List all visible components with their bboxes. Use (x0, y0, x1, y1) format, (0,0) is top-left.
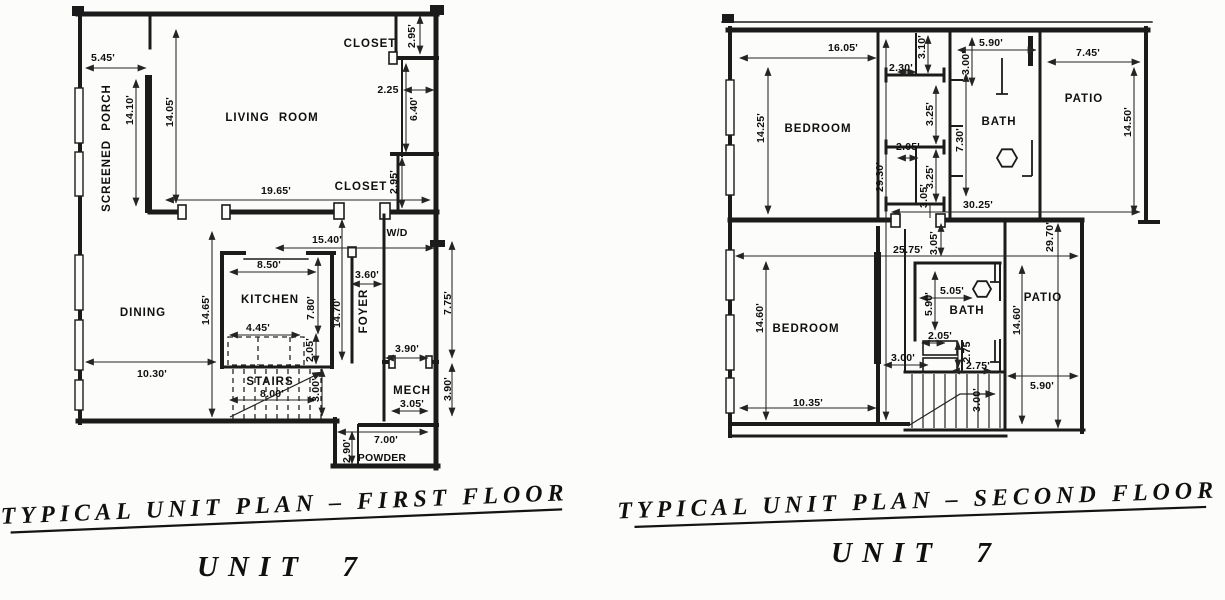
dim-hall-w: 15.40' (312, 234, 342, 246)
dim-c230: 2.30' (889, 62, 913, 74)
dim-right-h: 29.70' (1044, 222, 1056, 252)
first-floor-title: TYPICAL UNIT PLAN – FIRST FLOOR (0, 480, 569, 530)
second-floor-plan: BEDROOM BATH PATIO BEDROOM BATH PATIO 16… (722, 14, 1158, 436)
dim-porch-h: 14.10' (124, 95, 136, 125)
first-floor-unit-label: UNIT 7 (197, 551, 367, 583)
dim-counter-d: 2.05' (304, 338, 316, 362)
dim-bed2-h: 14.60' (754, 303, 766, 333)
label-screened-porch: SCREENED PORCH (101, 84, 113, 212)
label-kitchen: KITCHEN (241, 294, 299, 306)
scanned-floor-plan-page: SCREENED PORCH LIVING ROOM CLOSET CLOSET… (0, 0, 1225, 600)
label-powder: POWDER (358, 452, 407, 464)
second-floor-caption: TYPICAL UNIT PLAN – SECOND FLOOR (617, 478, 1219, 528)
dim-c325-u: 3.25' (924, 102, 936, 126)
dim-nook-h: 6.40' (408, 97, 420, 121)
label-bedroom-top: BEDROOM (784, 123, 851, 135)
dim-right-upper: 7.75' (442, 291, 454, 315)
dim-mid-w: 25.75' (893, 244, 923, 256)
dim-bed1-w: 16.05' (828, 42, 858, 54)
dim-dining-w: 10.30' (137, 368, 167, 380)
dim-c205-u: 2.05' (896, 141, 920, 153)
dim-porch-w: 5.45' (91, 52, 115, 64)
dim-closet-top-d: 2.95' (406, 24, 418, 48)
dim-c205-l: 2.05' (928, 330, 952, 342)
dim-right-lower: 3.90' (442, 377, 454, 401)
dim-stair-w: 8.00' (260, 388, 284, 400)
dim-foyer-h: 14.70' (331, 298, 343, 328)
dim-patio2-h: 14.60' (1011, 305, 1023, 335)
dim-bath1-h: 7.30' (954, 128, 966, 152)
first-floor-plan: SCREENED PORCH LIVING ROOM CLOSET CLOSET… (72, 5, 454, 468)
dim-bath1-d: 3.00' (960, 51, 972, 75)
floor-plans-drawing: SCREENED PORCH LIVING ROOM CLOSET CLOSET… (0, 0, 1225, 600)
dim-closet-bot-d: 2.95' (388, 170, 400, 194)
dim-nook-w: 2.25 (377, 84, 398, 96)
dim-living-h: 14.05' (164, 97, 176, 127)
dim-upper-w: 30.25' (963, 199, 993, 211)
dim-powder-d: 2.90' (341, 439, 353, 463)
label-living-room: LIVING ROOM (225, 112, 318, 124)
dim-dining-h: 14.65' (200, 295, 212, 325)
label-patio-bottom: PATIO (1024, 292, 1062, 304)
second-floor-walls (722, 14, 1158, 436)
label-closet-top: CLOSET (344, 38, 397, 50)
dim-c305-m: 3.05' (928, 231, 940, 255)
dim-mech-w: 3.05' (400, 398, 424, 410)
dim-foyer-w: 3.60' (355, 269, 379, 281)
dim-powder-w: 7.00' (374, 434, 398, 446)
label-bath-bottom: BATH (949, 305, 984, 317)
dim-hall-w: 3.00' (891, 352, 915, 364)
label-stairs: STAIRS (246, 376, 293, 388)
label-wd: W/D (386, 227, 407, 239)
dim-counter-w: 4.45' (246, 322, 270, 334)
label-mech: MECH (393, 385, 431, 397)
dim-mech-door: 3.90' (395, 343, 419, 355)
label-bath-top: BATH (981, 116, 1016, 128)
label-dining: DINING (120, 307, 166, 319)
dim-c310: 3.10' (916, 35, 928, 59)
second-floor-unit-label: UNIT 7 (831, 537, 1001, 569)
first-floor-caption: TYPICAL UNIT PLAN – FIRST FLOOR (0, 480, 569, 533)
label-bedroom-bottom: BEDROOM (772, 323, 839, 335)
dim-bed1-h: 14.25' (755, 113, 767, 143)
dim-kitchen-h: 7.80' (305, 296, 317, 320)
dim-c275-h: 2.75' (966, 360, 990, 372)
dim-kitchen-w: 8.50' (257, 259, 281, 271)
dim-total-h: 29.30' (874, 162, 886, 192)
dim-bath2-w: 5.05' (940, 285, 964, 297)
dim-living-w: 19.65' (261, 185, 291, 197)
dim-stair-v: 3.00' (971, 388, 983, 412)
label-closet-bottom: CLOSET (335, 181, 388, 193)
dim-stair-d: 3.00' (310, 378, 322, 402)
label-patio-top: PATIO (1065, 93, 1103, 105)
dim-bath1-w: 5.90' (979, 37, 1003, 49)
dim-bed2-w: 10.35' (793, 397, 823, 409)
dim-patio2-w: 5.90' (1030, 380, 1054, 392)
dim-patio1-h: 14.50' (1122, 107, 1134, 137)
dim-bath2-h: 5.90' (923, 292, 935, 316)
dim-patio1-w: 7.45' (1076, 47, 1100, 59)
dim-c305-u: 3.05' (918, 184, 930, 208)
label-foyer: FOYER (358, 289, 370, 334)
